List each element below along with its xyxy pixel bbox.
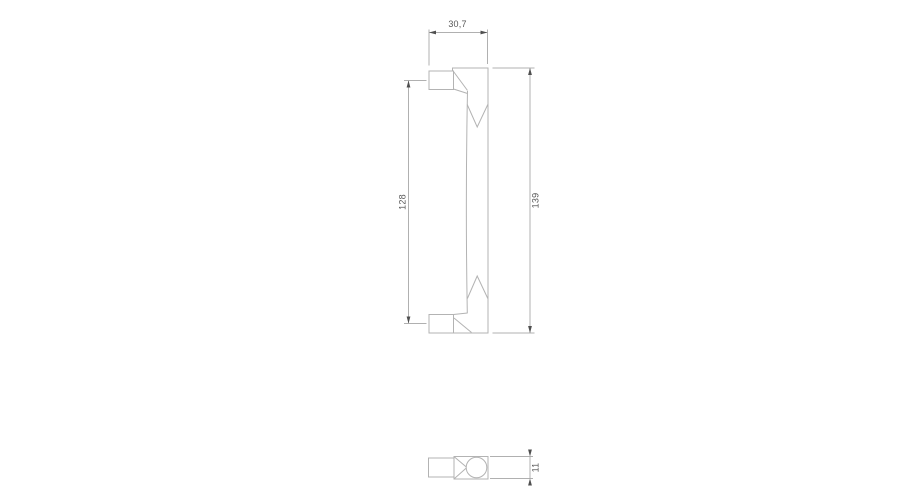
top-v-facet-edge <box>467 105 488 128</box>
bar-left-edge <box>466 91 467 313</box>
dimension-overall-length: 139 <box>493 68 541 333</box>
end-view-chamfer-edges <box>455 457 467 479</box>
bottom-v-facet-edge <box>467 276 487 299</box>
handle-outline <box>453 68 489 333</box>
dimension-label-overall-length: 139 <box>531 193 541 209</box>
dimension-label-top-width: 30,7 <box>448 19 466 29</box>
bottom-mounting-foot <box>429 315 454 334</box>
drawing-canvas: 30,7 128 139 11 <box>0 0 900 500</box>
dimension-lines <box>493 68 535 333</box>
top-chamfer-edges <box>454 72 468 94</box>
end-view-bar-circle <box>466 457 487 478</box>
dimension-lines <box>429 30 488 66</box>
bottom-chamfer-edges <box>454 313 472 333</box>
dimension-hole-spacing: 128 <box>398 81 427 324</box>
top-mounting-foot <box>429 71 454 90</box>
dimension-label-thickness: 11 <box>531 463 541 473</box>
end-view <box>429 457 489 480</box>
dimension-top-width: 30,7 <box>429 19 488 66</box>
dimension-lines <box>490 457 533 479</box>
front-view <box>429 68 488 333</box>
end-view-foot <box>429 458 455 477</box>
dimension-thickness: 11 <box>490 450 541 486</box>
technical-drawing: 30,7 128 139 11 <box>0 0 900 500</box>
dimension-label-hole-spacing: 128 <box>398 194 408 210</box>
